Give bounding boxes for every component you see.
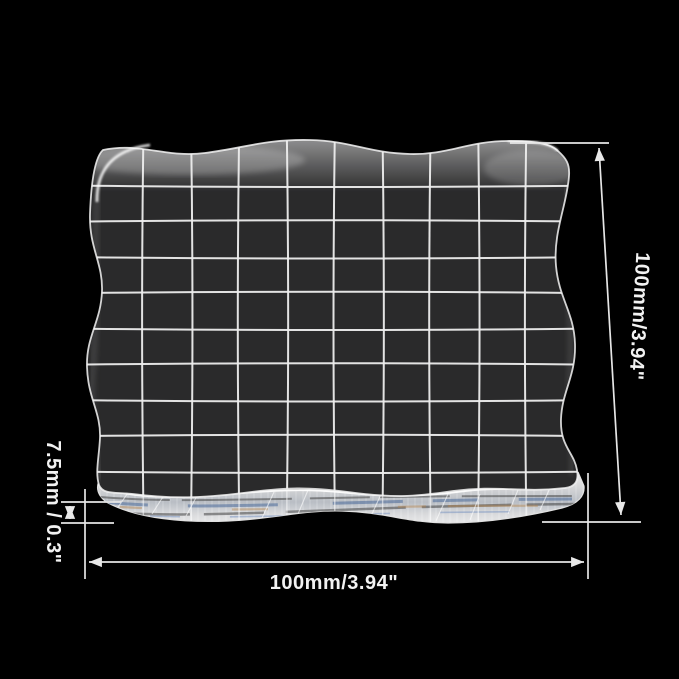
thickness-dimension-label: 7.5mm / 0.3" <box>42 440 64 563</box>
block-face <box>87 140 578 497</box>
product-diagram: 100mm/3.94" 100mm/3.94" 7.5mm / 0.3" <box>0 0 679 679</box>
diagram-canvas: 100mm/3.94" 100mm/3.94" 7.5mm / 0.3" <box>0 0 679 679</box>
stamp-block <box>75 138 586 530</box>
width-dimension-label: 100mm/3.94" <box>270 572 398 594</box>
